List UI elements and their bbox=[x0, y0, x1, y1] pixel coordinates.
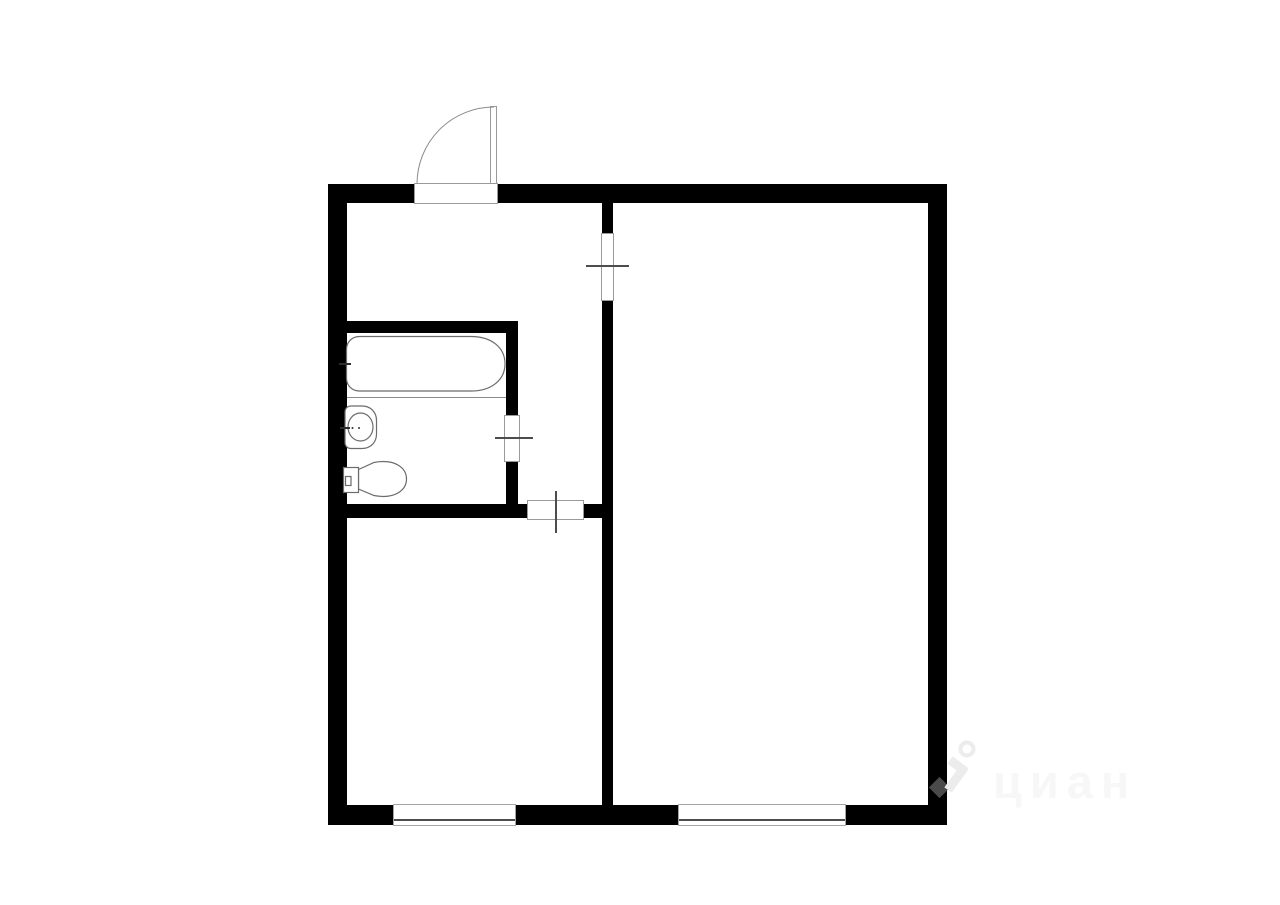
kitchen-window bbox=[393, 804, 516, 826]
outer-wall-top-right-of-entrance bbox=[498, 184, 947, 203]
inner-wall-vertical-above-door bbox=[602, 203, 613, 233]
window-glass-line bbox=[394, 819, 515, 821]
living-room-door-marker bbox=[586, 265, 629, 267]
floor-plan: циан bbox=[0, 0, 1280, 905]
entrance-door-swing-icon bbox=[410, 100, 505, 195]
toilet-button bbox=[346, 477, 352, 486]
watermark-text: циан bbox=[993, 758, 1137, 805]
window-glass-line bbox=[679, 819, 845, 821]
outer-wall-top-left-of-entrance bbox=[328, 184, 415, 203]
corridor-wall-bottom-stub bbox=[583, 504, 602, 518]
bathroom-wall-bottom bbox=[347, 504, 528, 518]
bathtub-icon bbox=[347, 337, 506, 392]
sink-tap-dot bbox=[352, 427, 354, 429]
cian-person-pin-icon bbox=[940, 738, 992, 804]
living-room-door-opening bbox=[601, 233, 614, 301]
bathroom-fixtures bbox=[330, 330, 515, 505]
living-room-window bbox=[678, 804, 846, 826]
toilet-bowl-icon bbox=[359, 462, 407, 497]
outer-wall-bottom-middle bbox=[516, 805, 679, 825]
sink-bowl bbox=[348, 413, 373, 441]
outer-wall-bottom-right bbox=[846, 805, 947, 825]
outer-wall-bottom-left bbox=[328, 805, 394, 825]
sink-tap-dot bbox=[358, 427, 360, 429]
outer-wall-right bbox=[928, 184, 947, 825]
kitchen-door-marker bbox=[555, 491, 557, 533]
bathroom-door-marker bbox=[495, 437, 533, 439]
inner-wall-vertical-below-door bbox=[602, 301, 613, 805]
